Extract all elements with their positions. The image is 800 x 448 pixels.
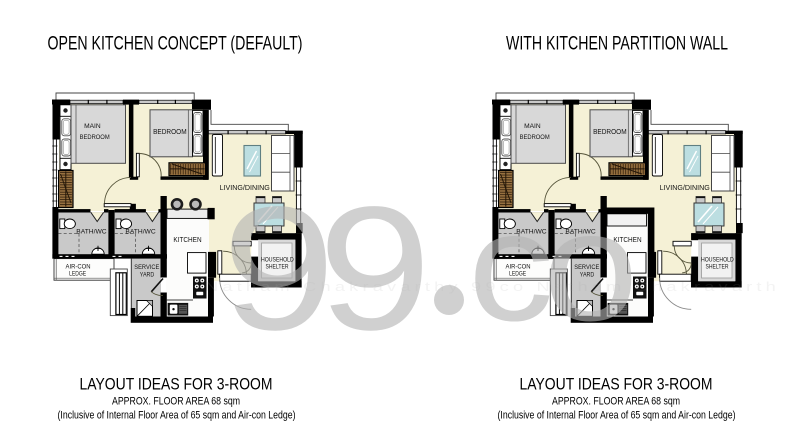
svg-text:SERVICE: SERVICE <box>134 264 160 271</box>
svg-text:(Inclusive of Internal Floor A: (Inclusive of Internal Floor Area of 65 … <box>498 410 736 422</box>
svg-text:APPROX. FLOOR AREA 68 sqm: APPROX. FLOOR AREA 68 sqm <box>552 396 680 408</box>
svg-text:APPROX. FLOOR AREA 68 sqm: APPROX. FLOOR AREA 68 sqm <box>112 396 240 408</box>
svg-text:WITH KITCHEN PARTITION WALL: WITH KITCHEN PARTITION WALL <box>506 34 728 55</box>
svg-text:9: 9 <box>318 170 432 367</box>
svg-text:OPEN KITCHEN CONCEPT (DEFAULT): OPEN KITCHEN CONCEPT (DEFAULT) <box>48 34 303 55</box>
svg-text:AIR-CON: AIR-CON <box>66 263 91 270</box>
svg-text:SHELTER: SHELTER <box>706 263 729 270</box>
svg-text:BEDROOM: BEDROOM <box>153 129 187 136</box>
svg-text:BEDROOM: BEDROOM <box>593 129 627 136</box>
svg-text:LEDGE: LEDGE <box>69 271 86 278</box>
svg-text:(Inclusive of Internal Floor A: (Inclusive of Internal Floor Area of 65 … <box>58 410 296 422</box>
svg-text:BATH/WC: BATH/WC <box>125 229 156 236</box>
svg-text:LAYOUT IDEAS FOR 3-ROOM: LAYOUT IDEAS FOR 3-ROOM <box>80 375 273 394</box>
svg-text:YARD: YARD <box>140 272 155 279</box>
svg-text:BEDROOM: BEDROOM <box>520 134 550 141</box>
svg-text:o: o <box>543 179 638 353</box>
svg-text:KITCHEN: KITCHEN <box>173 237 201 244</box>
svg-text:BATH/WC: BATH/WC <box>76 229 107 236</box>
svg-text:BEDROOM: BEDROOM <box>80 134 110 141</box>
svg-text:HOUSEHOLD: HOUSEHOLD <box>701 256 734 263</box>
svg-text:LIVING/DINING: LIVING/DINING <box>660 185 710 192</box>
svg-text:MAIN: MAIN <box>84 123 101 130</box>
svg-text:c: c <box>468 179 554 353</box>
svg-text:MAIN: MAIN <box>524 123 541 130</box>
svg-text:LAYOUT IDEAS FOR 3-ROOM: LAYOUT IDEAS FOR 3-ROOM <box>520 375 713 394</box>
